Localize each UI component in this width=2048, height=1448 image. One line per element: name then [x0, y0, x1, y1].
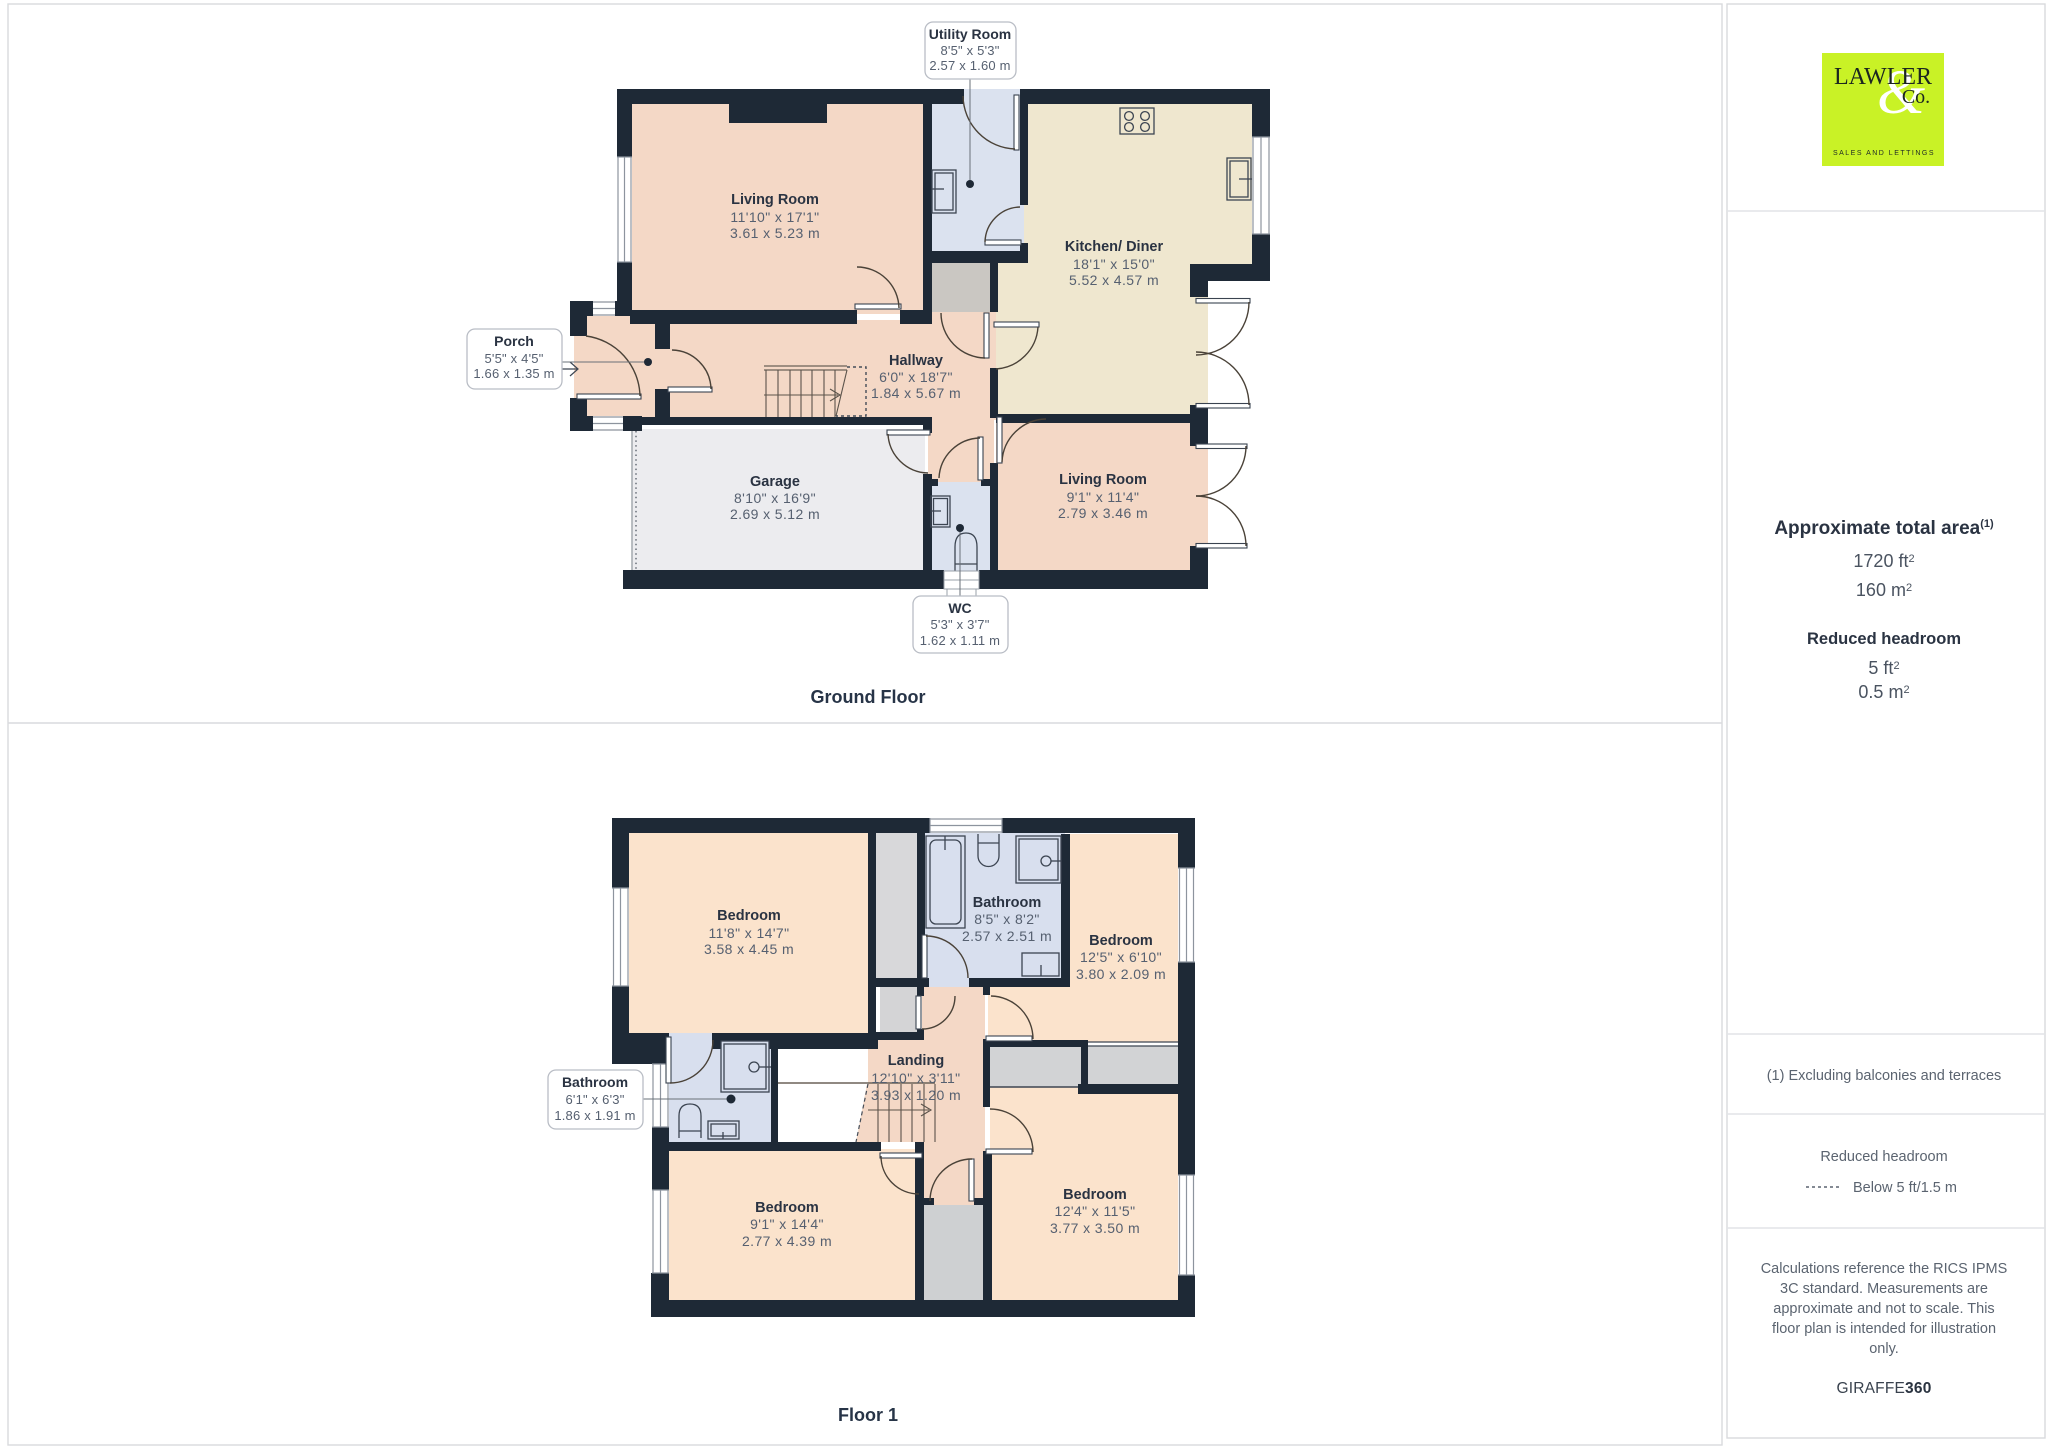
svg-text:3C standard. Measurements are: 3C standard. Measurements are: [1780, 1281, 1988, 1297]
svg-text:8'10" x 16'9": 8'10" x 16'9": [734, 490, 816, 506]
svg-text:Co.: Co.: [1902, 86, 1930, 108]
svg-text:0.5 m2: 0.5 m2: [1858, 682, 1909, 702]
svg-text:Kitchen/ Diner: Kitchen/ Diner: [1065, 239, 1164, 255]
svg-text:12'4" x 11'5": 12'4" x 11'5": [1055, 1203, 1136, 1219]
svg-text:5'3" x 3'7": 5'3" x 3'7": [930, 617, 989, 632]
svg-text:Approximate total area(1): Approximate total area(1): [1774, 518, 1994, 539]
svg-text:Calculations reference the RIC: Calculations reference the RICS IPMS: [1761, 1261, 2008, 1277]
svg-text:Living Room: Living Room: [1059, 472, 1147, 488]
svg-text:160 m2: 160 m2: [1856, 580, 1912, 600]
svg-text:Bedroom: Bedroom: [1063, 1187, 1127, 1203]
svg-text:Living Room: Living Room: [731, 192, 819, 208]
svg-text:9'1" x 11'4": 9'1" x 11'4": [1067, 489, 1140, 505]
svg-text:GIRAFFE360: GIRAFFE360: [1836, 1380, 1931, 1397]
svg-text:Porch: Porch: [494, 333, 534, 349]
svg-text:3.77 x 3.50 m: 3.77 x 3.50 m: [1050, 1220, 1140, 1236]
svg-text:3.61 x 5.23 m: 3.61 x 5.23 m: [730, 225, 820, 241]
svg-text:2.79 x 3.46 m: 2.79 x 3.46 m: [1058, 505, 1148, 521]
svg-text:11'8" x 14'7": 11'8" x 14'7": [709, 925, 790, 941]
svg-text:Bedroom: Bedroom: [717, 908, 781, 924]
svg-text:8'5" x 8'2": 8'5" x 8'2": [974, 911, 1040, 927]
svg-text:1.66 x 1.35 m: 1.66 x 1.35 m: [473, 366, 554, 381]
svg-text:Hallway: Hallway: [889, 353, 943, 369]
svg-text:6'1" x 6'3": 6'1" x 6'3": [565, 1092, 624, 1107]
svg-text:2.57 x 2.51 m: 2.57 x 2.51 m: [962, 928, 1052, 944]
svg-text:9'1" x 14'4": 9'1" x 14'4": [750, 1216, 824, 1232]
svg-text:WC: WC: [948, 600, 971, 616]
svg-text:Reduced headroom: Reduced headroom: [1807, 630, 1961, 648]
svg-text:Reduced headroom: Reduced headroom: [1820, 1149, 1947, 1165]
svg-text:1.84 x 5.67 m: 1.84 x 5.67 m: [871, 385, 961, 401]
svg-text:Floor 1: Floor 1: [838, 1405, 898, 1425]
svg-text:(1) Excluding balconies and te: (1) Excluding balconies and terraces: [1767, 1068, 2002, 1084]
svg-text:3.93 x 1.20 m: 3.93 x 1.20 m: [871, 1087, 961, 1103]
svg-text:SALES AND LETTINGS: SALES AND LETTINGS: [1833, 150, 1935, 157]
svg-text:1.86 x 1.91 m: 1.86 x 1.91 m: [554, 1108, 635, 1123]
svg-text:Landing: Landing: [888, 1053, 944, 1069]
svg-text:only.: only.: [1869, 1341, 1899, 1357]
svg-text:5'5" x 4'5": 5'5" x 4'5": [484, 351, 543, 366]
svg-text:1.62 x 1.11 m: 1.62 x 1.11 m: [920, 633, 1000, 648]
svg-text:Bedroom: Bedroom: [755, 1200, 819, 1216]
svg-text:8'5" x 5'3": 8'5" x 5'3": [940, 43, 999, 58]
svg-text:6'0" x 18'7": 6'0" x 18'7": [879, 369, 953, 385]
svg-text:2.57 x 1.60 m: 2.57 x 1.60 m: [929, 58, 1010, 73]
svg-text:Bathroom: Bathroom: [973, 895, 1041, 911]
svg-text:Below 5 ft/1.5 m: Below 5 ft/1.5 m: [1853, 1180, 1957, 1196]
svg-text:12'5" x 6'10": 12'5" x 6'10": [1080, 949, 1162, 965]
svg-text:Bedroom: Bedroom: [1089, 933, 1153, 949]
svg-text:2.69 x 5.12 m: 2.69 x 5.12 m: [730, 506, 820, 522]
svg-text:3.58 x 4.45 m: 3.58 x 4.45 m: [704, 941, 794, 957]
svg-text:2.77 x 4.39 m: 2.77 x 4.39 m: [742, 1233, 832, 1249]
svg-text:Ground Floor: Ground Floor: [811, 687, 926, 707]
svg-text:3.80 x 2.09 m: 3.80 x 2.09 m: [1076, 966, 1166, 982]
svg-text:approximate and not to scale.: approximate and not to scale. This: [1773, 1301, 1994, 1317]
svg-text:5.52 x 4.57 m: 5.52 x 4.57 m: [1069, 272, 1159, 288]
svg-text:Utility Room: Utility Room: [929, 26, 1011, 42]
svg-text:18'1" x 15'0": 18'1" x 15'0": [1073, 256, 1155, 272]
svg-text:Bathroom: Bathroom: [562, 1074, 628, 1090]
svg-text:floor plan is intended for ill: floor plan is intended for illustration: [1772, 1321, 1996, 1337]
svg-text:11'10" x 17'1": 11'10" x 17'1": [730, 209, 819, 225]
svg-text:1720 ft2: 1720 ft2: [1853, 551, 1914, 571]
svg-text:Garage: Garage: [750, 474, 800, 490]
svg-text:12'10" x 3'11": 12'10" x 3'11": [871, 1070, 960, 1086]
